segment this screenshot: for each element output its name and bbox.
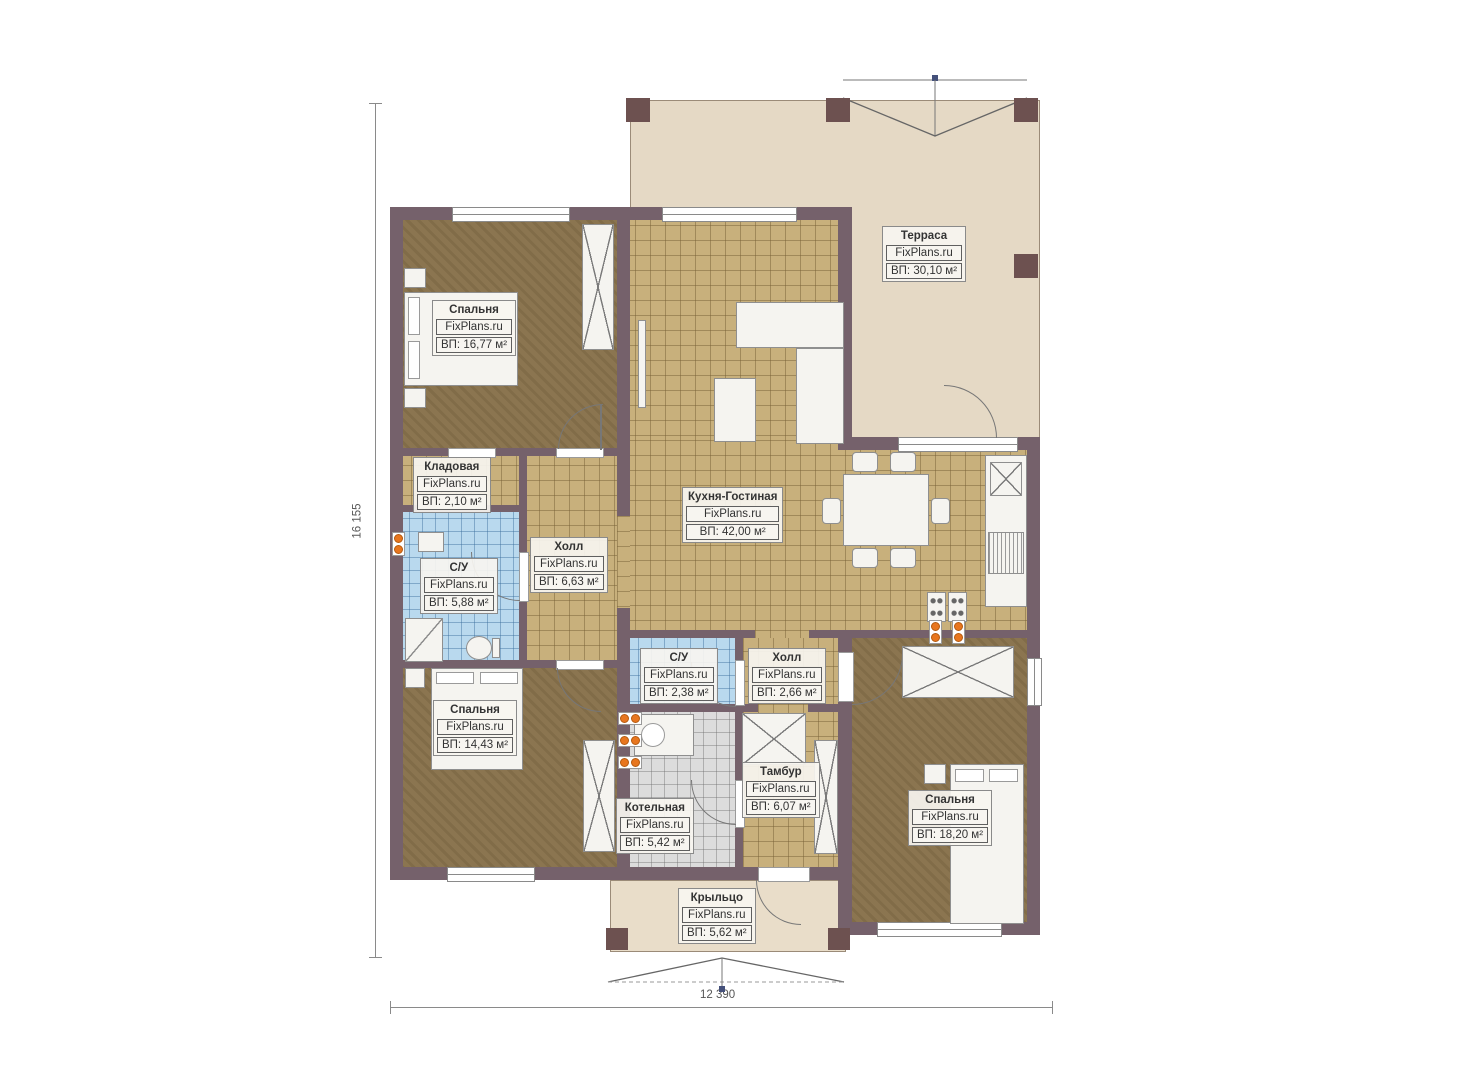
watermark: FixPlans.ru [644,667,714,683]
room-label-hall-1: Холл FixPlans.ru ВП: 6,63 м² [530,537,608,593]
watermark: FixPlans.ru [752,667,822,683]
chair [890,452,916,472]
room-area: ВП: 2,10 м² [417,494,487,510]
window [877,922,1002,937]
chair [931,498,950,524]
wardrobe [583,740,615,852]
room-area: ВП: 30,10 м² [886,263,962,279]
room-name: Спальня [437,703,513,717]
pillar [1014,98,1038,122]
room-label-storage: Кладовая FixPlans.ru ВП: 2,10 м² [413,457,491,513]
room-label-bedroom-2: Спальня FixPlans.ru ВП: 14,43 м² [433,700,517,756]
watermark: FixPlans.ru [417,476,487,492]
dimension-tick [390,1001,391,1014]
stove [948,592,967,622]
radiator-icon [392,532,405,556]
room-label-bathroom-1: С/У FixPlans.ru ВП: 5,88 м² [420,558,498,614]
pillar [1014,254,1038,278]
watermark: FixPlans.ru [437,719,513,735]
room-area: ВП: 18,20 м² [912,827,988,843]
radiator-icon [618,756,642,769]
room-label-vestibule: Тамбур FixPlans.ru ВП: 6,07 м² [742,762,820,818]
pillar [828,928,850,950]
room-label-bathroom-2: С/У FixPlans.ru ВП: 2,38 м² [640,648,718,704]
room-label-hall-2: Холл FixPlans.ru ВП: 2,66 м² [748,648,826,704]
fridge [988,532,1024,574]
door-opening-bathroom-1 [519,552,529,602]
dining-table [843,474,929,546]
nightstand [405,668,425,688]
room-name: Кухня-Гостиная [686,490,779,504]
door-opening-bathroom-2 [735,660,745,706]
radiator-icon [929,620,942,644]
room-area: ВП: 42,00 м² [686,524,779,540]
room-label-terrace: Терраса FixPlans.ru ВП: 30,10 м² [882,226,966,282]
room-area: ВП: 16,77 м² [436,337,512,353]
shower-tray [405,618,443,662]
boiler [634,714,694,756]
closet [742,713,806,765]
door-opening-bedroom-1 [556,448,604,458]
room-name: Спальня [436,303,512,317]
watermark: FixPlans.ru [436,319,512,335]
pillar [606,928,628,950]
room-label-kitchen-living: Кухня-Гостиная FixPlans.ru ВП: 42,00 м² [682,487,783,543]
tv-unit [638,320,646,408]
wall [617,630,1040,638]
window [447,867,535,882]
terrace-door [898,437,1018,452]
window [452,207,570,222]
radiator-icon [618,712,642,725]
watermark: FixPlans.ru [886,245,962,261]
chair [852,548,878,568]
room-name: Спальня [912,793,988,807]
watermark: FixPlans.ru [534,556,604,572]
room-name: С/У [644,651,714,665]
window [662,207,797,222]
pillar [626,98,650,122]
opening [758,704,808,712]
pillar [826,98,850,122]
room-area: ВП: 2,38 м² [644,685,714,701]
watermark: FixPlans.ru [424,577,494,593]
slope-marker-bottom [602,952,850,998]
washbasin [418,532,444,552]
dimension-tick [369,957,382,958]
sofa [736,302,844,348]
opening [755,630,809,638]
wardrobe [582,224,614,350]
opening [617,516,630,608]
room-name: Тамбур [746,765,816,779]
room-label-bedroom-3: Спальня FixPlans.ru ВП: 18,20 м² [908,790,992,846]
room-area: ВП: 6,63 м² [534,574,604,590]
door-leaf [600,404,602,450]
watermark: FixPlans.ru [912,809,988,825]
room-name: Терраса [886,229,962,243]
chair [890,548,916,568]
watermark: FixPlans.ru [686,506,779,522]
dimension-tick [1052,1001,1053,1014]
room-area: ВП: 14,43 м² [437,737,513,753]
sofa-chaise [796,348,844,444]
dimension-line-vertical [375,103,376,958]
room-name: С/У [424,561,494,575]
room-area: ВП: 5,42 м² [620,835,690,851]
room-area: ВП: 2,66 м² [752,685,822,701]
toilet-tank [492,638,500,658]
room-area: ВП: 6,07 м² [746,799,816,815]
stove [927,592,946,622]
nightstand [404,388,426,408]
radiator-icon [952,620,965,644]
dimension-line-horizontal [390,1007,1053,1008]
watermark: FixPlans.ru [746,781,816,797]
room-area: ВП: 5,88 м² [424,595,494,611]
room-name: Котельная [620,801,690,815]
toilet [466,636,492,660]
room-name: Холл [534,540,604,554]
nightstand [924,764,946,784]
room-name: Кладовая [417,460,487,474]
wardrobe [902,646,1014,698]
watermark: FixPlans.ru [620,817,690,833]
chair [852,452,878,472]
floor-plan-canvas: 16 155 12 390 [0,0,1474,1080]
dimension-tick [369,103,382,104]
room-name: Холл [752,651,822,665]
window [1027,658,1042,706]
room-label-boiler-room: Котельная FixPlans.ru ВП: 5,42 м² [616,798,694,854]
room-name: Крыльцо [682,891,752,905]
radiator-icon [618,734,642,747]
coffee-table [714,378,756,442]
chair [822,498,841,524]
room-label-porch: Крыльцо FixPlans.ru ВП: 5,62 м² [678,888,756,944]
room-area: ВП: 5,62 м² [682,925,752,941]
watermark: FixPlans.ru [682,907,752,923]
room-label-bedroom-1: Спальня FixPlans.ru ВП: 16,77 м² [432,300,516,356]
kitchen-sink [990,462,1022,496]
nightstand [404,268,426,288]
slope-marker-top [835,62,1035,140]
dimension-height-label: 16 155 [352,503,364,538]
